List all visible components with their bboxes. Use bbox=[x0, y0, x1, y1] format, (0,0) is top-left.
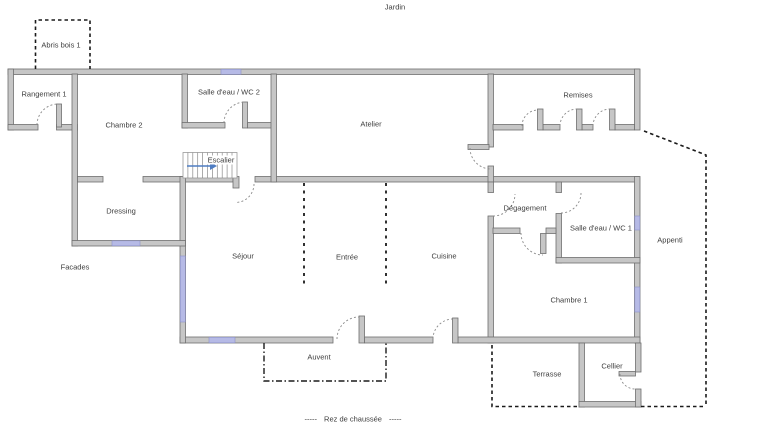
door-arc-cuisine bbox=[433, 319, 453, 339]
room-label-cellier: Cellier bbox=[601, 362, 622, 371]
room-label-cuisine: Cuisine bbox=[431, 252, 456, 261]
room-label-salle-eau-wc-1: Salle d'eau / WC 1 bbox=[570, 224, 632, 233]
door-arc-remises-2 bbox=[560, 109, 577, 126]
area-label-terrasse: Terrasse bbox=[533, 370, 562, 379]
floor-title-dash-right: ----- bbox=[389, 415, 402, 424]
door-arc-remises-1 bbox=[522, 110, 538, 126]
door-arc-degagement-south bbox=[521, 233, 543, 255]
area-label-jardin: Jardin bbox=[385, 3, 405, 12]
area-label-appenti: Appenti bbox=[657, 236, 682, 245]
door-arc-remises-3 bbox=[593, 109, 610, 126]
door-arc-entrance bbox=[337, 317, 359, 339]
room-label-atelier: Atelier bbox=[360, 120, 381, 129]
window-wc1-east bbox=[635, 216, 640, 230]
room-label-degagement: Dégagement bbox=[504, 204, 547, 213]
window-sejour-south bbox=[209, 337, 235, 343]
room-label-chambre-1: Chambre 1 bbox=[550, 296, 587, 305]
door-arc-wc2 bbox=[224, 102, 245, 123]
dashed-boundary-auvent bbox=[264, 343, 386, 381]
room-label-sejour: Séjour bbox=[232, 252, 254, 261]
area-label-facades: Facades bbox=[61, 263, 90, 272]
floor-plan: Jardin Abris bois 1 Rangement 1 Chambre … bbox=[0, 0, 763, 443]
floor-title-text: Rez de chaussée bbox=[324, 415, 382, 424]
window-wc2-north bbox=[221, 69, 241, 74]
door-arc-rangement bbox=[37, 104, 58, 125]
room-label-remises: Remises bbox=[563, 91, 592, 100]
window-sejour-west bbox=[180, 256, 185, 322]
room-label-entree: Entrée bbox=[336, 253, 358, 262]
room-label-dressing: Dressing bbox=[106, 207, 136, 216]
area-label-auvent: Auvent bbox=[307, 353, 330, 362]
door-leaves bbox=[57, 102, 636, 376]
floor-title-dash-left: ----- bbox=[305, 415, 318, 424]
room-label-salle-eau-wc-2: Salle d'eau / WC 2 bbox=[198, 88, 260, 97]
room-label-rangement: Rangement 1 bbox=[21, 90, 66, 99]
window-chambre1-east bbox=[635, 287, 640, 312]
door-arc-wc1 bbox=[561, 193, 581, 213]
floor-title: ----- Rez de chaussée ----- bbox=[305, 415, 402, 424]
room-label-chambre-2: Chambre 2 bbox=[105, 121, 142, 130]
floor-plan-drawing bbox=[0, 0, 763, 443]
window-dressing-south bbox=[112, 241, 140, 246]
dashed-boundary-appenti bbox=[644, 131, 706, 406]
room-label-escalier: Escalier bbox=[207, 156, 236, 165]
dashed-boundary-terrasse bbox=[492, 345, 706, 407]
room-label-abris-bois: Abris bois 1 bbox=[41, 41, 80, 50]
